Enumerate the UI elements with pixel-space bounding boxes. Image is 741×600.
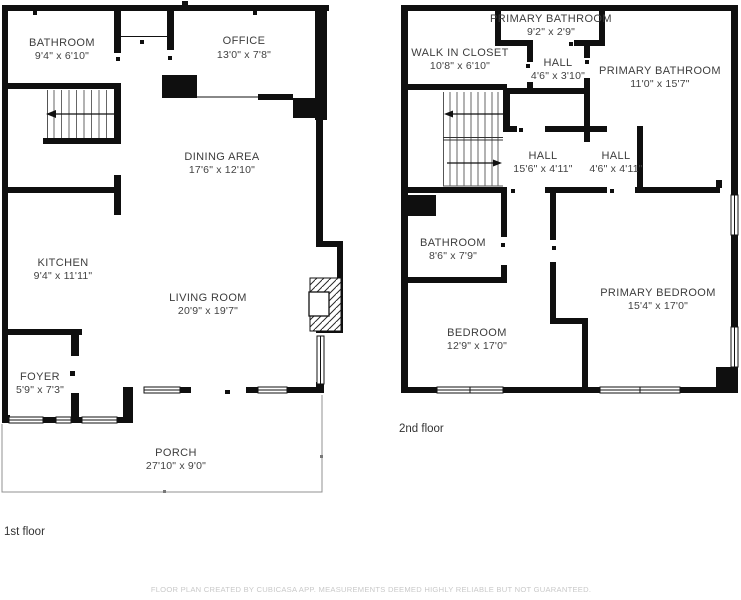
window-icon bbox=[731, 327, 738, 367]
room-label-office: OFFICE bbox=[223, 35, 266, 47]
room-dims-hall-top: 4'6" x 3'10" bbox=[531, 70, 585, 82]
room-label-living-room: LIVING ROOM bbox=[169, 292, 247, 304]
room-dims-kitchen: 9'4" x 11'11" bbox=[34, 270, 93, 282]
room-label-hall-top: HALL bbox=[543, 57, 572, 69]
second-floor-label: 2nd floor bbox=[399, 423, 444, 435]
room-dims-hall-main: 15'6" x 4'11" bbox=[513, 163, 572, 175]
room-label-dining-area: DINING AREA bbox=[184, 151, 260, 163]
porch-outline bbox=[2, 395, 323, 493]
floor-plan-drawing: BATHROOM 9'4" x 6'10" OFFICE 13'0" x 7'8… bbox=[0, 0, 741, 600]
first-floor-label: 1st floor bbox=[4, 526, 45, 538]
second-floor-stairs-icon bbox=[443, 92, 503, 186]
room-label-kitchen: KITCHEN bbox=[37, 257, 88, 269]
room-label-foyer: FOYER bbox=[20, 371, 60, 383]
window-icon bbox=[258, 387, 287, 393]
room-label-primary-bedroom: PRIMARY BEDROOM bbox=[600, 287, 716, 299]
room-dims-living-room: 20'9" x 19'7" bbox=[178, 305, 238, 317]
room-dims-bedroom: 12'9" x 17'0" bbox=[447, 340, 507, 352]
room-label-porch: PORCH bbox=[155, 447, 197, 459]
second-floor-plan: PRIMARY BATHROOM 9'2" x 2'9" WALK IN CLO… bbox=[399, 5, 738, 435]
footer-disclaimer: FLOOR PLAN CREATED BY CUBICASA APP. MEAS… bbox=[151, 585, 591, 594]
room-dims-porch: 27'10" x 9'0" bbox=[146, 460, 206, 472]
room-label-bedroom: BEDROOM bbox=[447, 327, 507, 339]
room-label-bathroom-2f: BATHROOM bbox=[420, 237, 486, 249]
room-dims-primary-bathroom-small: 9'2" x 2'9" bbox=[527, 26, 575, 38]
room-dims-bathroom-2f: 8'6" x 7'9" bbox=[429, 250, 477, 262]
room-dims-primary-bedroom: 15'4" x 17'0" bbox=[628, 300, 688, 312]
room-dims-walk-in-closet: 10'8" x 6'10" bbox=[430, 60, 490, 72]
room-label-walk-in-closet: WALK IN CLOSET bbox=[411, 47, 509, 59]
stair-direction-arrow bbox=[444, 111, 503, 118]
room-dims-office: 13'0" x 7'8" bbox=[217, 49, 271, 61]
stair-direction-arrow bbox=[46, 110, 118, 118]
stair-direction-arrow bbox=[447, 160, 502, 167]
first-floor-door-markers bbox=[70, 40, 230, 394]
window-icon bbox=[317, 336, 324, 384]
room-dims-dining-area: 17'6" x 12'10" bbox=[189, 164, 255, 176]
window-icon bbox=[144, 387, 180, 393]
window-icon bbox=[600, 387, 680, 393]
fireplace-icon bbox=[309, 278, 341, 331]
room-label-hall-side: HALL bbox=[601, 150, 630, 162]
room-label-bathroom-1f: BATHROOM bbox=[29, 37, 95, 49]
room-dims-hall-side: 4'6" x 4'11" bbox=[589, 163, 642, 175]
window-icon bbox=[437, 387, 503, 393]
room-label-primary-bathroom: PRIMARY BATHROOM bbox=[599, 65, 721, 77]
window-icon bbox=[731, 195, 738, 235]
first-floor-walls bbox=[2, 1, 343, 423]
room-label-primary-bathroom-small: PRIMARY BATHROOM bbox=[490, 13, 612, 25]
window-icon bbox=[82, 417, 117, 423]
floor-plan-page: BATHROOM 9'4" x 6'10" OFFICE 13'0" x 7'8… bbox=[0, 0, 741, 600]
first-floor-stairs-icon bbox=[46, 90, 118, 138]
window-icon bbox=[9, 417, 43, 423]
room-dims-bathroom-1f: 9'4" x 6'10" bbox=[35, 50, 89, 62]
room-label-hall-main: HALL bbox=[528, 150, 557, 162]
room-dims-primary-bathroom: 11'0" x 15'7" bbox=[630, 78, 689, 90]
first-floor-plan: BATHROOM 9'4" x 6'10" OFFICE 13'0" x 7'8… bbox=[2, 1, 343, 538]
window-icon bbox=[56, 417, 71, 423]
room-dims-foyer: 5'9" x 7'3" bbox=[16, 384, 64, 396]
